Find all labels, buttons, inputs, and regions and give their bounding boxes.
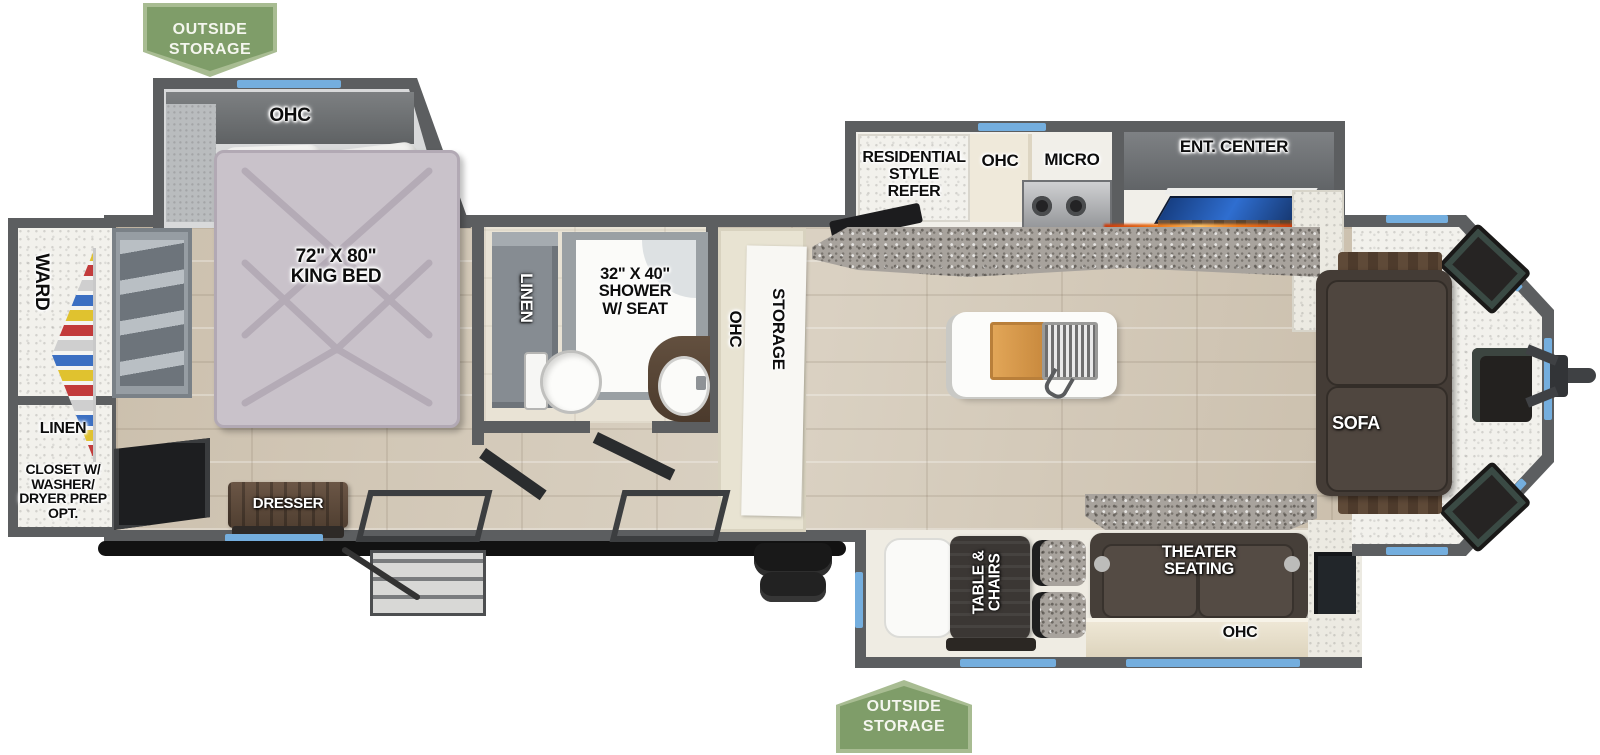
bottom-slide-window-1 (960, 659, 1056, 667)
bottom-slide-window-left (855, 572, 863, 628)
dinette-bench (884, 538, 954, 638)
bed-quilt-stitching (217, 153, 457, 425)
sofa-cushion-top (1326, 280, 1448, 386)
closet-washer-dryer-label: CLOSET W/ WASHER/ DRYER PREP OPT. (8, 462, 118, 521)
kitchen-slide-window (978, 123, 1046, 131)
bedroom-tv (114, 438, 210, 530)
kitchen-ohc-label: OHC (960, 152, 1040, 170)
wardrobe-shelves (120, 240, 184, 386)
outside-storage-banner-bottom-fill: OUTSIDE STORAGE (836, 680, 972, 753)
burner-left (1032, 196, 1052, 216)
bedroom-wardrobe-face (166, 104, 216, 222)
dresser-label: DRESSER (238, 496, 338, 512)
outside-storage-banner-top-fill: OUTSIDE STORAGE (143, 3, 277, 77)
entry-window-frame-2 (610, 490, 731, 542)
table-chairs-label: TABLE & CHAIRS (972, 522, 1005, 642)
hall-storage-label: STORAGE (769, 274, 787, 384)
bath-linen-label: LINEN (517, 243, 535, 353)
sofa-label: SOFA (1314, 414, 1398, 433)
floorplan-canvas: WARD LINEN CLOSET W/ WASHER/ DRYER PREP … (0, 0, 1600, 755)
burner-right (1066, 196, 1086, 216)
bottom-slide-window-2 (1126, 659, 1300, 667)
slide-tv-niche (1314, 552, 1356, 614)
dinette-chair-2 (1032, 592, 1086, 638)
round-entry-step-2 (760, 572, 826, 602)
bathroom-bottom-wall-left (472, 421, 590, 433)
theater-cupholder-left (1094, 556, 1110, 572)
outside-storage-banner-bottom: OUTSIDE STORAGE (836, 680, 972, 753)
refer-label: RESIDENTIAL STYLE REFER (854, 150, 974, 200)
living-ohc-label: OHC (1200, 625, 1280, 642)
bedroom-bath-wall (472, 227, 484, 445)
fold-out-steps (370, 550, 486, 616)
shower-label: 32" X 40" SHOWER W/ SEAT (565, 266, 705, 318)
king-bed-label: 72" X 80" KING BED (256, 247, 416, 287)
front-table (1472, 348, 1532, 422)
ward-label: WARD (31, 232, 51, 332)
micro-label: MICRO (1032, 151, 1112, 169)
theater-seating-label: THEATER SEATING (1139, 544, 1259, 579)
kitchen-entcenter-divider (1112, 121, 1124, 227)
sofa-cushion-bottom (1326, 386, 1448, 492)
theater-cupholder-right (1284, 556, 1300, 572)
hall-ohc-label: OHC (726, 279, 744, 379)
ent-center-label: ENT. CENTER (1154, 138, 1314, 156)
rear-closet-divider-wall (18, 396, 112, 405)
bath-faucet (696, 376, 706, 390)
lower-counter (1085, 494, 1317, 532)
entry-window-frame-1 (356, 490, 493, 542)
bedroom-ohc-label: OHC (250, 106, 330, 126)
island-sink (1042, 322, 1098, 380)
outside-storage-bottom-label: OUTSIDE STORAGE (863, 697, 945, 737)
kitchen-counter (812, 227, 1320, 277)
toilet-bowl (540, 350, 602, 414)
bedroom-slide-window (237, 80, 341, 88)
dinette-chair-1 (1032, 540, 1086, 586)
cutting-board (990, 322, 1046, 380)
front-window-top (1386, 215, 1448, 223)
rear-linen-label: LINEN (18, 421, 108, 438)
front-window-bottom (1386, 547, 1448, 555)
outside-storage-banner-top: OUTSIDE STORAGE (143, 3, 277, 77)
king-bed (214, 150, 460, 428)
outside-storage-top-label: OUTSIDE STORAGE (169, 20, 251, 60)
